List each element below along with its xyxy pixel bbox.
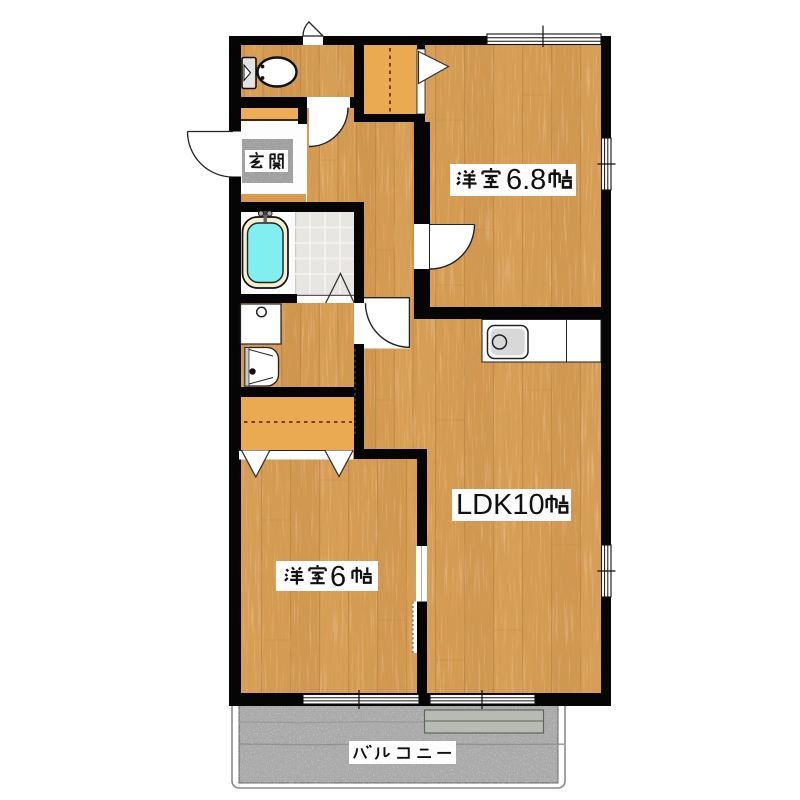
- svg-text:6: 6: [330, 561, 346, 593]
- svg-text:LDK10: LDK10: [456, 489, 545, 521]
- svg-text:6.8: 6.8: [506, 164, 546, 196]
